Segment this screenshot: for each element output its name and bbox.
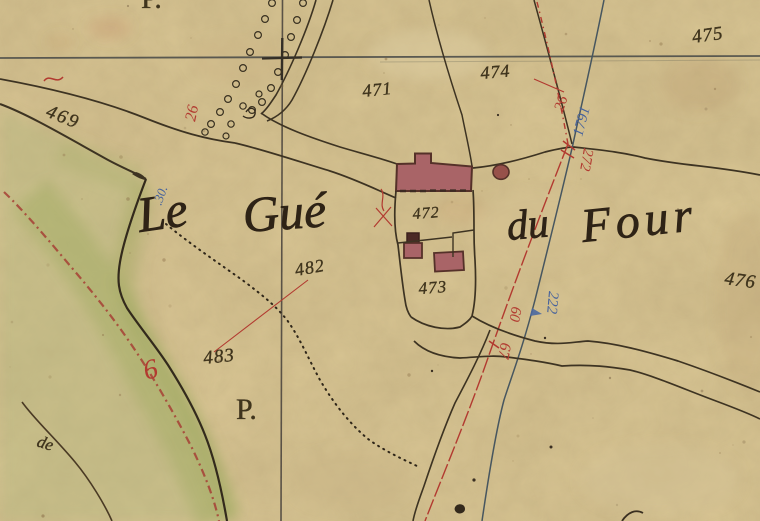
- svg-text:du: du: [505, 200, 551, 249]
- svg-text:Gué: Gué: [241, 181, 330, 243]
- svg-text:472: 472: [412, 204, 440, 223]
- svg-text:475: 475: [691, 23, 725, 48]
- svg-text:473: 473: [418, 277, 448, 298]
- svg-text:471: 471: [361, 78, 393, 101]
- svg-text:474: 474: [480, 60, 512, 83]
- svg-text:476: 476: [723, 268, 757, 293]
- svg-text:P.: P.: [236, 393, 257, 426]
- svg-text:P.: P.: [141, 0, 162, 15]
- svg-text:222: 222: [543, 291, 561, 315]
- svg-text:483: 483: [202, 345, 236, 369]
